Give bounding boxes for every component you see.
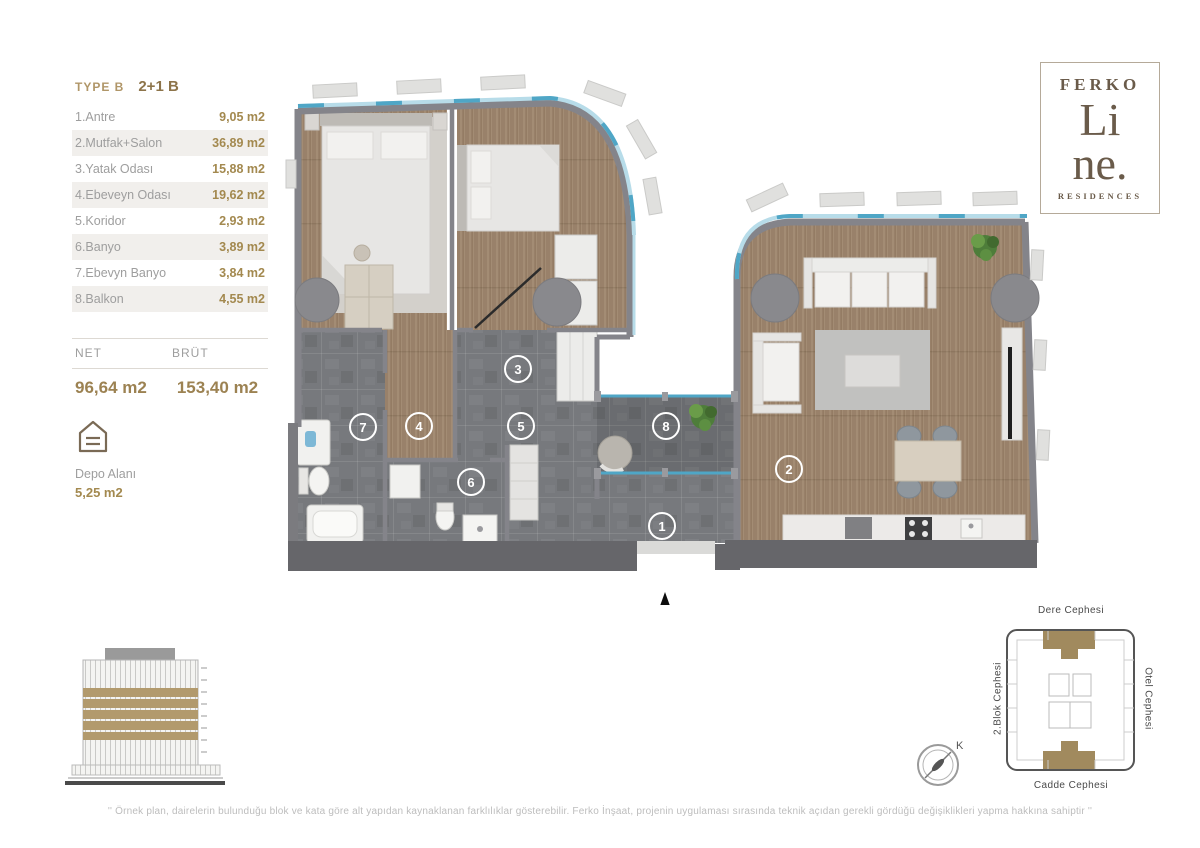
table-row: 8.Balkon4,55 m2 — [72, 286, 268, 312]
room-name: 8.Balkon — [75, 292, 124, 306]
site-label-blok: 2.Blok Cephesi — [993, 634, 1004, 764]
stove-icon — [905, 517, 932, 540]
table-row: 2.Mutfak+Salon36,89 m2 — [72, 130, 268, 156]
room-number-badge: 2 — [775, 455, 803, 483]
table-row: 1.Antre9,05 m2 — [72, 104, 268, 130]
compass: K — [912, 735, 974, 793]
room-name: 4.Ebeveyn Odası — [75, 188, 171, 202]
floor-plan-page: TYPE B2+1 B 1.Antre9,05 m2 2.Mutfak+Salo… — [0, 0, 1200, 848]
divider — [72, 368, 268, 369]
table-row: 7.Ebevyn Banyo3,84 m2 — [72, 260, 268, 286]
room-name: 1.Antre — [75, 110, 115, 124]
unit-info-panel: TYPE B2+1 B 1.Antre9,05 m2 2.Mutfak+Salo… — [72, 78, 268, 548]
compass-north-label: K — [956, 740, 964, 752]
room-name: 7.Ebevyn Banyo — [75, 266, 166, 280]
room-area: 3,84 m2 — [219, 266, 265, 280]
room-name: 6.Banyo — [75, 240, 121, 254]
storage-house-icon — [75, 418, 111, 456]
room-area: 15,88 m2 — [212, 162, 265, 176]
entrance-arrow-icon — [651, 592, 679, 605]
room-number-badge: 6 — [457, 468, 485, 496]
room-name: 5.Koridor — [75, 214, 126, 228]
storage-info: Depo Alanı 5,25 m2 — [75, 418, 136, 500]
summary-values: 96,64 m2 153,40 m2 — [75, 378, 268, 398]
room-number-badge: 7 — [349, 413, 377, 441]
room-name: 2.Mutfak+Salon — [75, 136, 162, 150]
building-elevation — [60, 640, 230, 790]
room-area: 4,55 m2 — [219, 292, 265, 306]
site-key-plan — [1003, 622, 1138, 777]
room-number-badge: 3 — [504, 355, 532, 383]
sink-icon — [961, 519, 982, 538]
net-label: NET — [75, 346, 102, 360]
storage-label: Depo Alanı — [75, 467, 136, 481]
room-area: 36,89 m2 — [212, 136, 265, 150]
summary-labels: NET BRÜT — [75, 346, 265, 360]
room-number-badge: 5 — [507, 412, 535, 440]
room-area: 19,62 m2 — [212, 188, 265, 202]
brut-value: 153,40 m2 — [177, 378, 258, 398]
room-number-badge: 8 — [652, 412, 680, 440]
kitchen-counter — [783, 515, 1025, 541]
room-area: 3,89 m2 — [219, 240, 265, 254]
room-name: 3.Yatak Odası — [75, 162, 153, 176]
table-row: 4.Ebeveyn Odası19,62 m2 — [72, 182, 268, 208]
apartment-floor-plan: 1 2 3 4 5 6 7 8 — [285, 65, 1065, 605]
table-row: 3.Yatak Odası15,88 m2 — [72, 156, 268, 182]
disclaimer-text: '' Örnek plan, dairelerin bulunduğu blok… — [0, 806, 1200, 817]
room-number-badge: 4 — [405, 412, 433, 440]
site-label-otel: Otel Cephesi — [1143, 634, 1154, 764]
site-label-cadde: Cadde Cephesi — [1006, 780, 1136, 791]
brut-label: BRÜT — [172, 346, 209, 360]
divider — [72, 338, 268, 339]
room-area: 9,05 m2 — [219, 110, 265, 124]
exterior-walls — [288, 540, 1037, 571]
unit-title: TYPE B2+1 B — [75, 78, 179, 96]
site-label-dere: Dere Cephesi — [1006, 605, 1136, 616]
table-row: 6.Banyo3,89 m2 — [72, 234, 268, 260]
net-value: 96,64 m2 — [75, 378, 147, 398]
variant-label: 2+1 B — [138, 78, 178, 95]
type-label: TYPE B — [75, 80, 124, 94]
room-area-table: 1.Antre9,05 m2 2.Mutfak+Salon36,89 m2 3.… — [72, 104, 268, 312]
dining-table — [895, 441, 961, 481]
room-area: 2,93 m2 — [219, 214, 265, 228]
storage-value: 5,25 m2 — [75, 485, 136, 500]
table-row: 5.Koridor2,93 m2 — [72, 208, 268, 234]
room-number-badge: 1 — [648, 512, 676, 540]
